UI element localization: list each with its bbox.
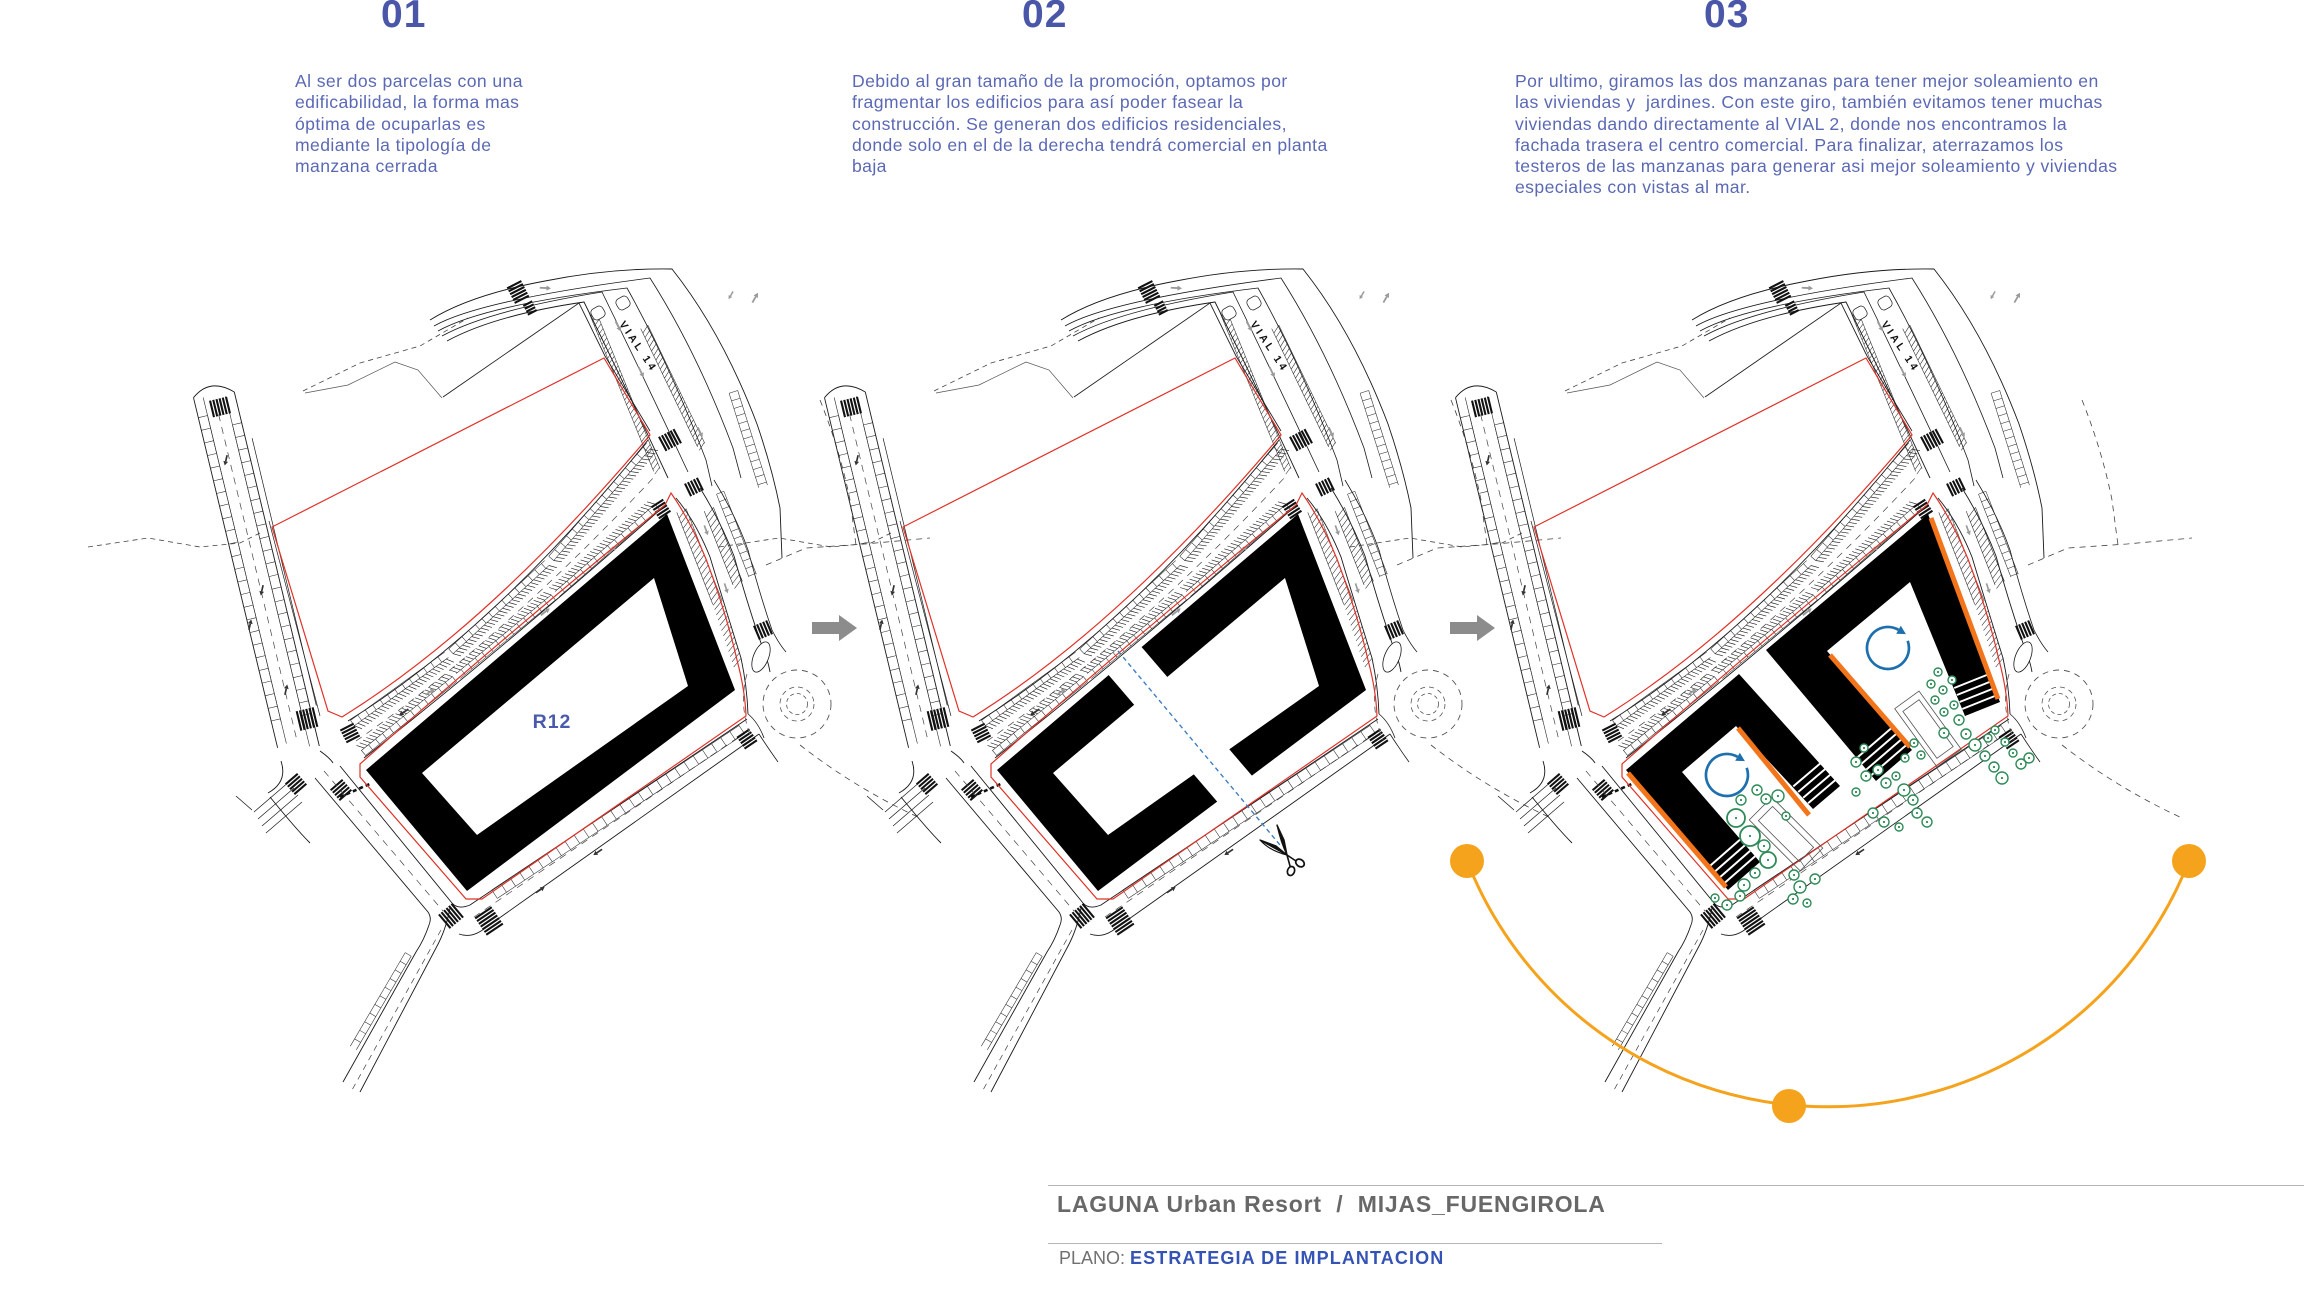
svg-text:R12: R12 [533, 711, 572, 733]
